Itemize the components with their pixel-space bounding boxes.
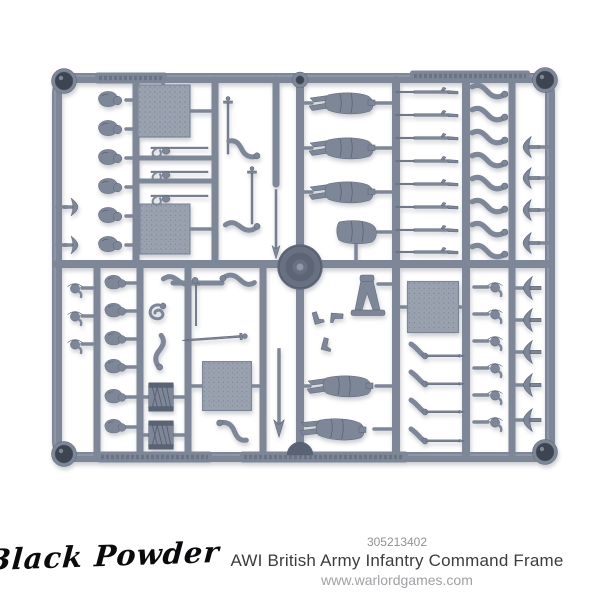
black-powder-logo: Black Powder: [6, 527, 200, 586]
product-page: Black Powder 305213402 AWI British Army …: [0, 0, 600, 600]
sprue-svg: [0, 0, 600, 512]
website-url: www.warlordgames.com: [200, 571, 594, 589]
product-photo: [0, 0, 600, 512]
product-title: AWI British Army Infantry Command Frame: [200, 550, 594, 571]
caption-footer: Black Powder 305213402 AWI British Army …: [0, 512, 600, 600]
product-code: 305213402: [200, 535, 594, 550]
product-meta: 305213402 AWI British Army Infantry Comm…: [200, 535, 594, 589]
